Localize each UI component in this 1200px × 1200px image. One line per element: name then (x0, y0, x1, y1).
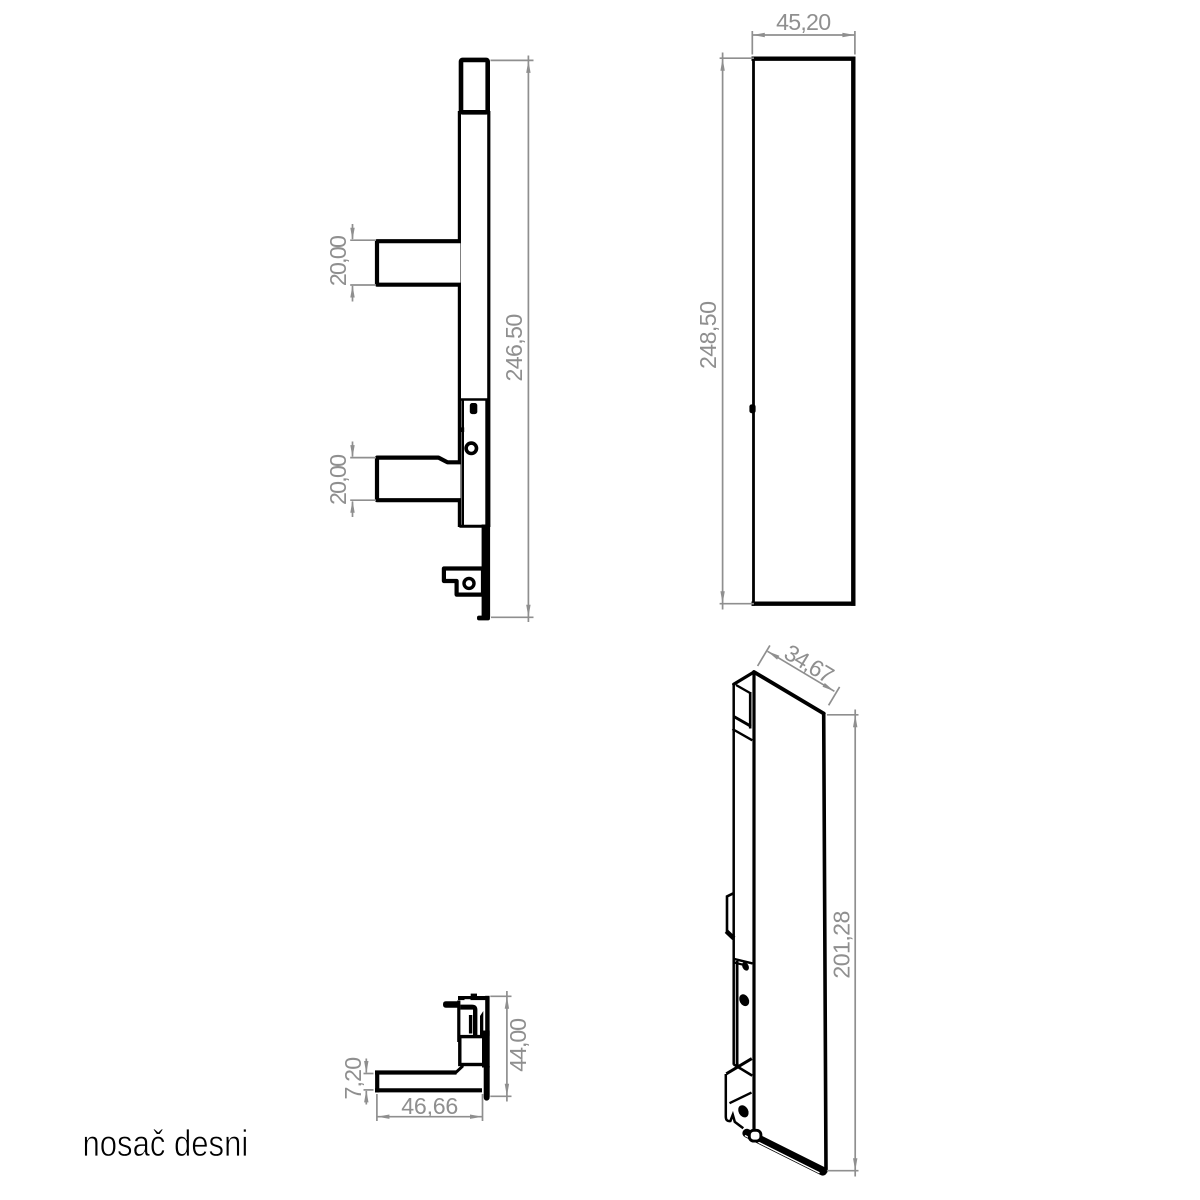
svg-text:44,00: 44,00 (505, 1018, 531, 1072)
svg-text:nosač: nosač (83, 1123, 166, 1164)
svg-text:34,67: 34,67 (780, 639, 839, 689)
svg-text:20,00: 20,00 (325, 454, 351, 505)
svg-text:246,50: 246,50 (501, 314, 527, 382)
svg-text:45,20: 45,20 (776, 9, 831, 35)
svg-text:46,66: 46,66 (401, 1093, 458, 1119)
svg-text:20,00: 20,00 (325, 235, 351, 286)
svg-text:desni: desni (174, 1123, 248, 1164)
svg-text:201,28: 201,28 (828, 911, 854, 979)
svg-text:248,50: 248,50 (695, 301, 721, 369)
svg-text:7,20: 7,20 (340, 1057, 366, 1100)
